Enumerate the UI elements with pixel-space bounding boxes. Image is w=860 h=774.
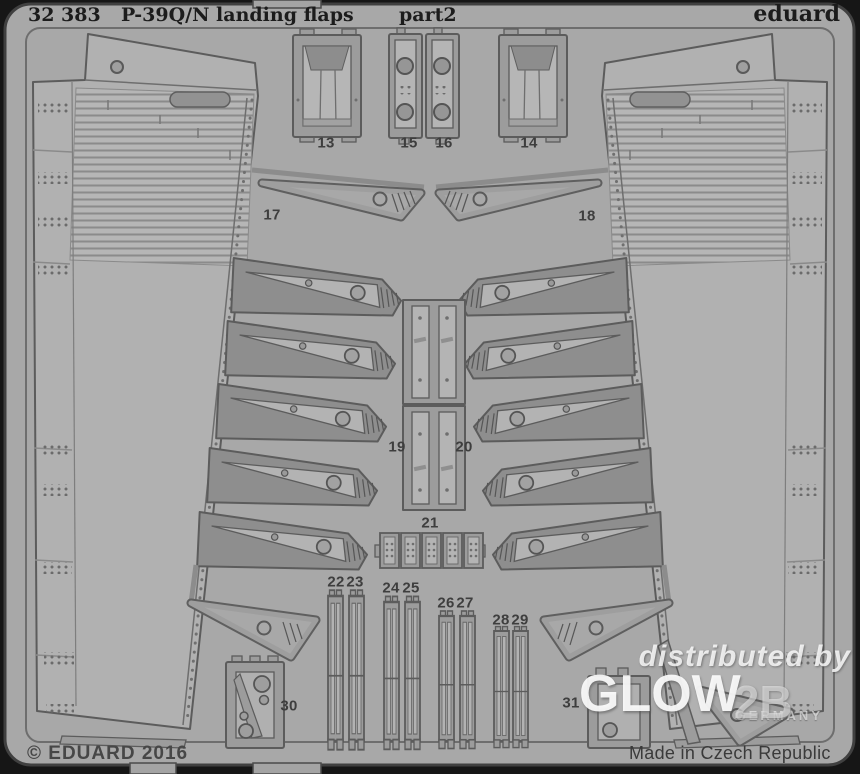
part-label-28: 28 (492, 612, 509, 629)
part-label-22: 22 (327, 574, 344, 591)
part-30-shape (226, 656, 284, 748)
brand-logo: eduard (753, 1, 840, 27)
part-label-27: 27 (456, 595, 473, 612)
part-label-16: 16 (435, 135, 452, 152)
made-in-text: Made in Czech Republic (629, 743, 831, 764)
part-label-23: 23 (346, 574, 363, 591)
sheet-title: P-39Q/N landing flaps (121, 4, 354, 26)
part-label-14: 14 (520, 135, 537, 152)
part-31-shape (588, 668, 650, 748)
part-21-shape (375, 533, 485, 568)
part-label-19: 19 (388, 439, 405, 456)
part-label-24: 24 (382, 580, 399, 597)
part-label-31: 31 (562, 695, 579, 712)
part-label-30: 30 (280, 698, 297, 715)
part-label-18: 18 (578, 208, 595, 225)
part-label-20: 20 (455, 439, 472, 456)
part-label-15: 15 (400, 135, 417, 152)
part-label-29: 29 (511, 612, 528, 629)
part-label-26: 26 (437, 595, 454, 612)
photoetch-fret-photo: 32 383 P-39Q/N landing flaps part2 eduar… (0, 0, 860, 774)
part-label-17: 17 (263, 207, 280, 224)
catalog-number: 32 383 (28, 4, 101, 26)
part-label-21: 21 (421, 515, 438, 532)
part-label-25: 25 (402, 580, 419, 597)
part-19-20-shapes (403, 300, 465, 510)
fret-sheet-graphic (0, 0, 860, 774)
part-label-13: 13 (317, 135, 334, 152)
part-suffix: part2 (399, 4, 457, 26)
copyright-text: © EDUARD 2016 (27, 743, 188, 765)
